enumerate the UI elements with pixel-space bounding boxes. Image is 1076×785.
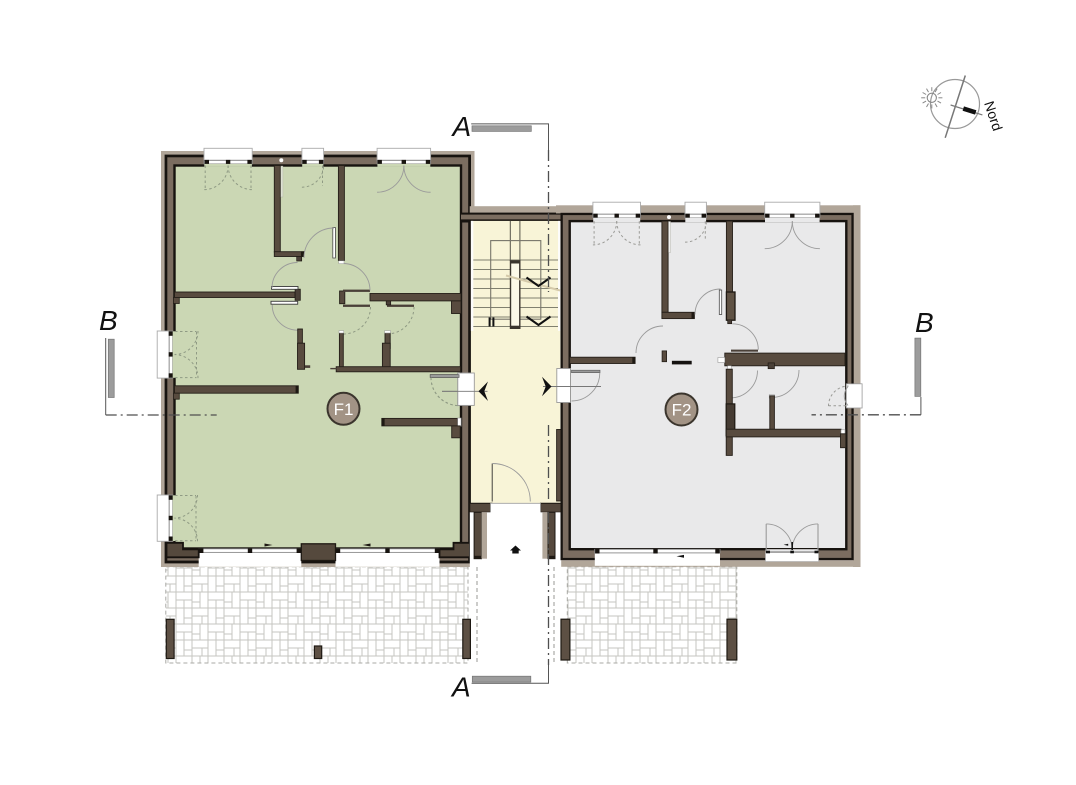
svg-text:F2: F2 bbox=[672, 401, 692, 420]
svg-text:B: B bbox=[915, 307, 934, 338]
svg-text:A: A bbox=[450, 672, 471, 703]
svg-text:F1: F1 bbox=[334, 400, 354, 419]
svg-text:B: B bbox=[99, 305, 118, 336]
svg-text:A: A bbox=[451, 111, 472, 142]
